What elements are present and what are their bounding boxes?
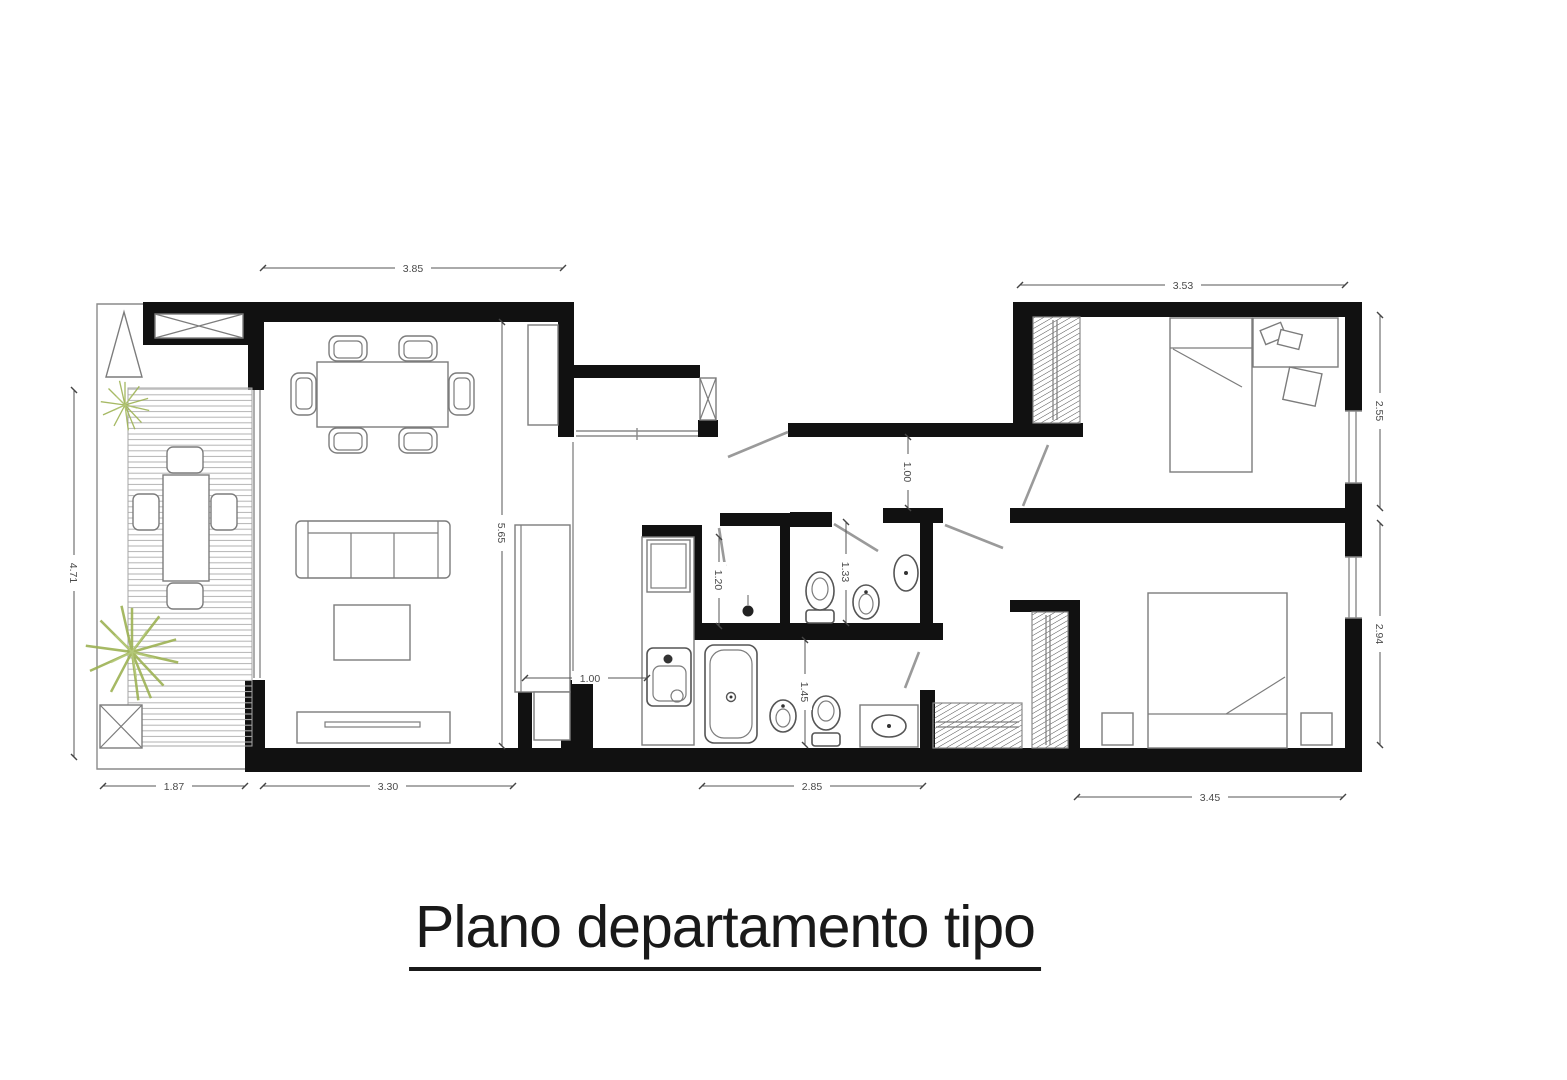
dim-terrace-bottom: 1.87	[156, 779, 192, 793]
bedroom1-door-leaf	[1023, 445, 1048, 506]
dim-bedroom2-bottom: 3.45	[1192, 790, 1228, 804]
entry	[576, 378, 788, 457]
svg-text:3.85: 3.85	[403, 263, 424, 275]
svg-text:2.55: 2.55	[1373, 401, 1385, 422]
wc-door-leaf	[834, 524, 878, 551]
storage-x-box	[155, 314, 243, 338]
dim-bathroom-height: 1.45	[798, 674, 812, 710]
svg-text:3.53: 3.53	[1173, 280, 1194, 292]
page-title: Plano departamento tipo	[409, 893, 1041, 971]
dim-bedroom2-right: 2.94	[1373, 616, 1387, 652]
svg-text:4.71: 4.71	[67, 563, 79, 584]
kitchen-peninsula-counter	[515, 525, 570, 692]
tv-sideboard	[297, 712, 450, 743]
terrace-table	[163, 475, 209, 581]
toilet	[806, 572, 834, 623]
dim-living-height: 5.65	[495, 515, 509, 551]
single-bed	[1170, 318, 1252, 472]
bedroom1-closet	[1033, 317, 1080, 423]
bathroom-toilet	[812, 696, 840, 746]
lower-cabinet	[534, 692, 570, 740]
entry-threshold	[576, 428, 698, 440]
bathroom-sink	[860, 705, 918, 747]
terrace	[86, 304, 260, 769]
bathroom-bidet	[770, 700, 796, 732]
nightstand-left	[1102, 713, 1133, 745]
svg-text:5.65: 5.65	[495, 523, 507, 544]
dining-table	[317, 362, 448, 427]
entry-door-leaf	[728, 432, 788, 457]
nightstand-right	[1301, 713, 1332, 745]
entry-x-column	[700, 378, 716, 420]
terrace-glass-door	[254, 390, 260, 678]
coat-closet	[933, 703, 1022, 748]
bedroom2-closet	[1032, 612, 1068, 748]
planter-x-box	[100, 705, 142, 748]
bathroom-door-leaf	[905, 652, 919, 688]
bathtub	[705, 645, 757, 743]
dim-hall-width: 1.00	[901, 454, 915, 490]
fridge	[647, 540, 690, 592]
svg-text:1.87: 1.87	[164, 781, 185, 793]
coffee-table	[334, 605, 410, 660]
tall-cabinet	[528, 325, 558, 425]
dim-bedroom1-right: 2.55	[1373, 393, 1387, 429]
sofa	[296, 521, 450, 578]
svg-text:1.33: 1.33	[839, 562, 851, 583]
dim-terrace-left: 4.71	[67, 555, 81, 591]
bedroom-1	[1033, 317, 1338, 472]
dim-living-bottom: 3.30	[370, 779, 406, 793]
wc	[806, 524, 918, 623]
hall	[933, 445, 1048, 748]
svg-text:1.00: 1.00	[901, 462, 913, 483]
svg-text:1.20: 1.20	[712, 570, 724, 591]
dim-bedroom1-top: 3.53	[1165, 278, 1201, 292]
dim-bathroom-bottom: 2.85	[794, 779, 830, 793]
svg-text:3.45: 3.45	[1200, 792, 1221, 804]
window-bedroom2	[1345, 557, 1362, 618]
terrace-triangle-plant	[106, 312, 142, 377]
dim-living-top: 3.85	[395, 261, 431, 275]
kitchen	[642, 537, 694, 745]
bidet	[853, 585, 879, 619]
living-room	[291, 325, 573, 743]
laundry-door-leaf	[719, 528, 725, 566]
window-bedroom1	[1345, 411, 1362, 483]
svg-text:1.45: 1.45	[798, 682, 810, 703]
floor-drain	[743, 606, 754, 617]
bedroom2-door-leaf	[945, 525, 1003, 548]
double-bed	[1148, 593, 1287, 748]
svg-text:2.94: 2.94	[1373, 624, 1385, 645]
svg-text:3.30: 3.30	[378, 781, 399, 793]
svg-text:1.00: 1.00	[580, 673, 601, 685]
dim-kitchen-pass: 1.00	[572, 671, 608, 685]
kitchen-sink	[647, 648, 691, 706]
wc-sink	[894, 555, 918, 591]
floor-plan-page: 3.85 3.53 4.71 5.65 2.55 2.94 1.87 3.30 …	[0, 0, 1567, 1080]
svg-text:2.85: 2.85	[802, 781, 823, 793]
dim-wc-height: 1.33	[839, 554, 853, 590]
dim-laundry-height: 1.20	[712, 562, 726, 598]
